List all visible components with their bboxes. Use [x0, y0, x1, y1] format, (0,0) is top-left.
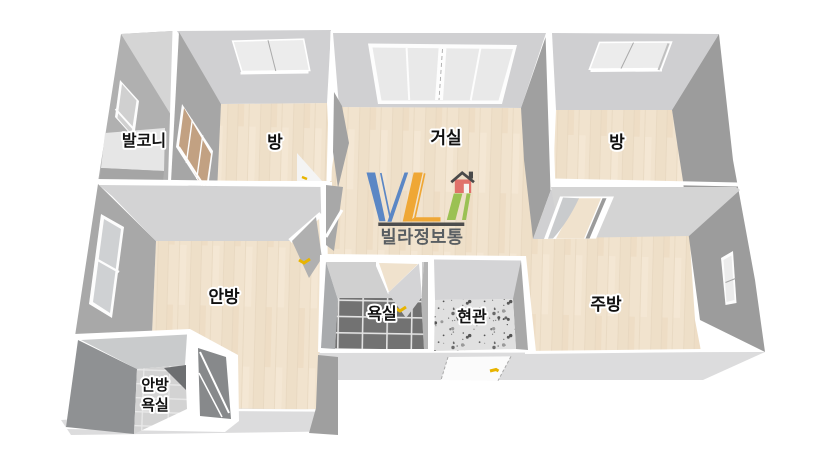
svg-text:발코니: 발코니	[122, 132, 166, 150]
svg-text:안방: 안방	[141, 376, 169, 394]
svg-text:안방: 안방	[208, 288, 240, 307]
svg-text:욕실: 욕실	[141, 397, 169, 414]
svg-text:거실: 거실	[430, 129, 461, 148]
svg-text:욕실: 욕실	[367, 305, 396, 323]
svg-text:방: 방	[267, 133, 283, 152]
svg-text:방: 방	[609, 133, 625, 152]
svg-text:현관: 현관	[457, 307, 487, 326]
svg-text:주방: 주방	[590, 295, 622, 314]
svg-text:빌라정보통: 빌라정보통	[381, 227, 464, 247]
